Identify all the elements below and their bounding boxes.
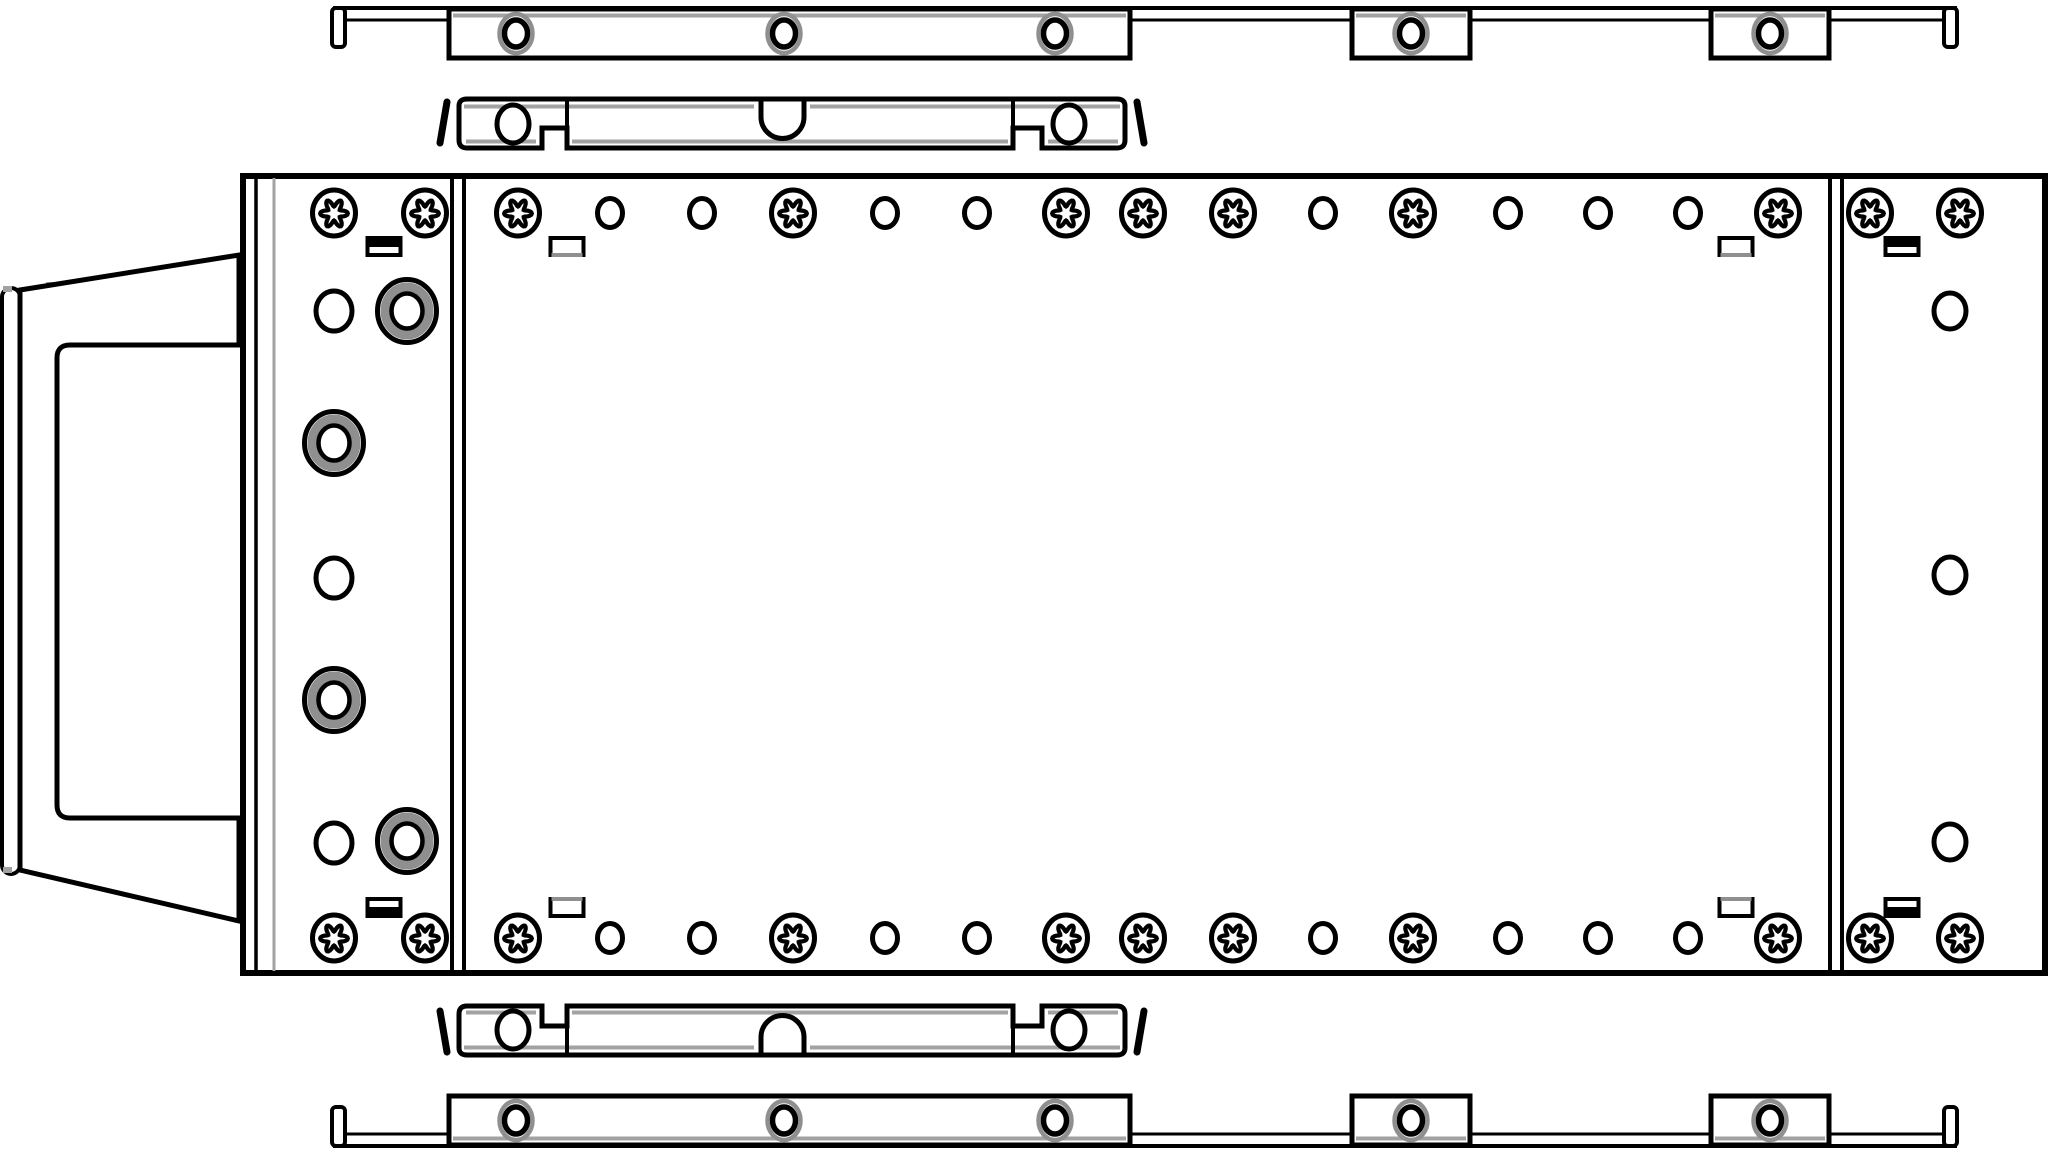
- rail-hole: [1044, 1107, 1067, 1134]
- torx-recess-icon: [1946, 201, 1974, 227]
- rail-hole: [773, 1107, 796, 1134]
- handle-bezel: [2, 255, 246, 921]
- top-latch-bracket: [440, 97, 1144, 148]
- rivet-hole: [873, 924, 898, 953]
- latch-hole: [497, 105, 529, 143]
- rail-hole: [1044, 20, 1067, 47]
- bezel-highlight: [3, 867, 12, 873]
- spring-pin: [1137, 102, 1144, 143]
- rivet-hole: [1934, 557, 1966, 593]
- rivet-hole: [1676, 199, 1701, 228]
- vent-slot-fill: [366, 907, 403, 918]
- handle-pocket: [57, 345, 246, 818]
- rail-end-hook: [1944, 1107, 1957, 1146]
- rivet-hole: [965, 199, 990, 228]
- rail-hole: [505, 20, 528, 47]
- rivet-hole: [316, 291, 352, 331]
- torx-recess-icon: [1764, 926, 1792, 952]
- rail-hole: [1400, 20, 1423, 47]
- chassis-assembly-drawing: [0, 0, 2048, 1154]
- torx-recess-icon: [779, 201, 807, 227]
- torx-recess-icon: [411, 201, 439, 227]
- rivet-hole: [1934, 293, 1966, 329]
- torx-recess-icon: [320, 926, 348, 952]
- rail-end-hook: [332, 8, 345, 47]
- torx-recess-icon: [1219, 926, 1247, 952]
- torx-recess-icon: [1052, 926, 1080, 952]
- torx-recess-icon: [1399, 926, 1427, 952]
- torx-recess-icon: [1129, 926, 1157, 952]
- torx-recess-icon: [1399, 201, 1427, 227]
- rivet-hole: [690, 199, 715, 228]
- torx-recess-icon: [779, 926, 807, 952]
- torx-recess-icon: [504, 201, 532, 227]
- rail-end-hook: [1944, 8, 1957, 47]
- rivet-hole: [1496, 924, 1521, 953]
- rivet-hole: [1676, 924, 1701, 953]
- torx-recess-icon: [1764, 201, 1792, 227]
- torx-recess-icon: [1856, 201, 1884, 227]
- torx-recess-icon: [504, 926, 532, 952]
- latch-hole: [497, 1011, 529, 1049]
- spring-pin: [440, 102, 447, 143]
- vent-slot-fill: [1884, 236, 1921, 247]
- rail-hole: [1759, 20, 1782, 47]
- rivet-hole: [1496, 199, 1521, 228]
- spring-pin: [440, 1011, 447, 1052]
- torx-recess-icon: [1052, 201, 1080, 227]
- bezel-highlight: [3, 286, 12, 292]
- vent-slot-fill: [366, 236, 403, 247]
- bottom-latch-bracket: [440, 1006, 1144, 1057]
- torx-recess-icon: [411, 926, 439, 952]
- chassis-body: [243, 176, 2045, 973]
- rivet-hole: [316, 823, 352, 863]
- vent-slot-fill: [1884, 907, 1921, 918]
- top-mounting-rail: [332, 8, 1957, 58]
- rivet-hole: [1934, 824, 1966, 860]
- rail-hole: [505, 1107, 528, 1134]
- rail-end-hook: [332, 1107, 345, 1146]
- rivet-hole: [598, 924, 623, 953]
- vent-slot: [1720, 238, 1753, 255]
- technical-drawing-page: [0, 0, 2048, 1154]
- vent-slot: [1720, 899, 1753, 916]
- rail-hole: [773, 20, 796, 47]
- latch-hole: [1053, 1011, 1085, 1049]
- rivet-hole: [598, 199, 623, 228]
- grommet-bore: [319, 683, 350, 718]
- rivet-hole: [1586, 924, 1611, 953]
- chassis-outline: [243, 176, 2045, 973]
- u-notch: [761, 1016, 804, 1058]
- latch-hole: [1053, 105, 1085, 143]
- u-notch: [761, 97, 804, 139]
- rivet-hole: [965, 924, 990, 953]
- bezel-flange: [2, 288, 20, 874]
- spring-pin: [1137, 1011, 1144, 1052]
- rivet-hole: [690, 924, 715, 953]
- rivet-hole: [873, 199, 898, 228]
- vent-slot: [551, 238, 584, 255]
- rivet-hole: [1311, 199, 1336, 228]
- rail-hole: [1400, 1107, 1423, 1134]
- vent-slot: [551, 899, 584, 916]
- rail-hole: [1759, 1107, 1782, 1134]
- torx-recess-icon: [1856, 926, 1884, 952]
- grommet-bore: [392, 824, 423, 859]
- bottom-mounting-rail: [332, 1096, 1957, 1146]
- torx-recess-icon: [1219, 201, 1247, 227]
- torx-recess-icon: [1129, 201, 1157, 227]
- rivet-hole: [1586, 199, 1611, 228]
- grommet-bore: [319, 426, 350, 461]
- rivet-hole: [1311, 924, 1336, 953]
- grommet-bore: [392, 294, 423, 329]
- torx-recess-icon: [1946, 926, 1974, 952]
- rivet-hole: [316, 558, 352, 598]
- torx-recess-icon: [320, 201, 348, 227]
